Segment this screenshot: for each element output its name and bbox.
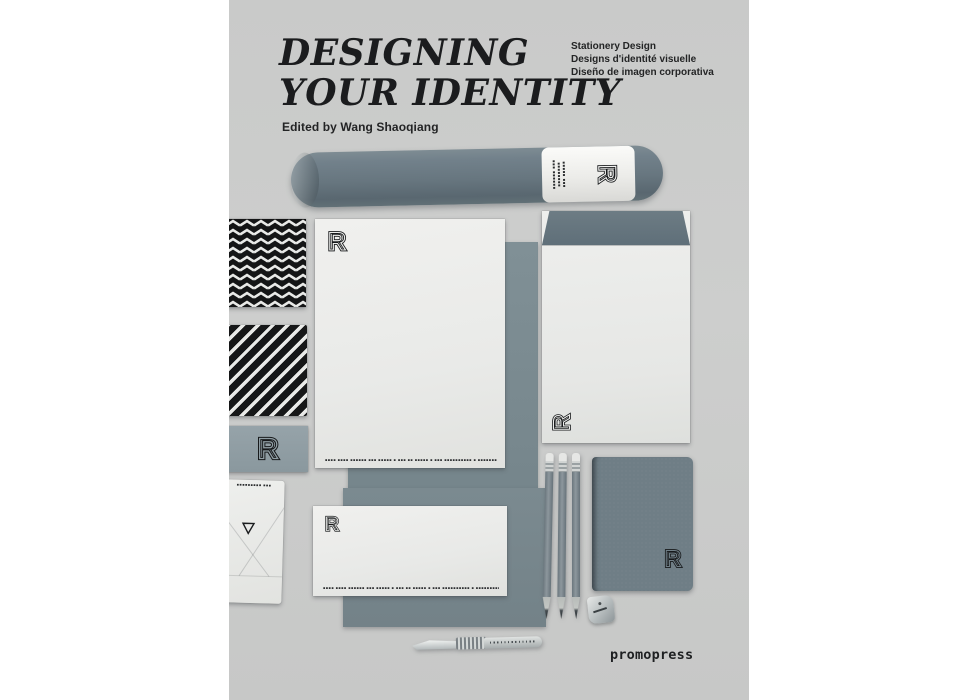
gray-business-card: RR [229,426,308,472]
title-line-2: YOUR IDENTITY [279,73,621,113]
tube-end-cap [290,152,319,208]
pencil-ferrule [572,461,580,472]
scene: DESIGNING YOUR IDENTITY Edited by Wang S… [0,0,980,700]
subtitle-spanish: Diseño de imagen corporativa [571,66,714,79]
page-title: DESIGNING YOUR IDENTITY [279,33,621,113]
pencil-body [572,472,580,597]
pencil [557,453,567,619]
r-logo-icon: RR [324,226,350,256]
book-cover: DESIGNING YOUR IDENTITY Edited by Wang S… [229,0,749,700]
diagonal-pattern-card [229,325,307,416]
envelope-flap [542,211,690,245]
notebook: RR [592,457,693,591]
title-line-1: DESIGNING [279,33,621,73]
scalpel-grip [456,637,486,650]
svg-text:R: R [548,414,574,430]
envelope-c5: RR [542,211,690,443]
letterhead-footer-microtext: ▪▪▪▪ ▪▪▪▪ ▪▪▪▪▪▪ ▪▪▪ ▪▪▪▪▪ ▪ ▪▪▪ ▪▪ ▪▪▪▪… [325,458,497,463]
pencil-ferrule [545,461,553,472]
tube-label: ▪▪▪▪▪▪ ▪▪▪ ▪▪▪▪▪▪▪▪ ▪▪▪ ▪▪▪▪▪ RR [541,146,635,203]
envelope-back-card: ▪▪▪▪▪▪▪▪▪ ▪▪▪ [229,479,285,604]
svg-text:R: R [258,434,279,466]
editor-credit: Edited by Wang Shaoqiang [282,120,439,134]
svg-text:R: R [325,515,339,536]
pencil-tip [542,597,550,619]
pencil [572,453,580,619]
pencil-ferrule [559,461,567,472]
dl-footer-microtext: ▪▪▪▪ ▪▪▪▪ ▪▪▪▪▪▪ ▪▪▪ ▪▪▪▪▪ ▪ ▪▪▪ ▪▪ ▪▪▪▪… [323,586,499,591]
scalpel [412,633,542,653]
edition-subtitles: Stationery Design Designs d'identité vis… [571,40,714,79]
pencil-body [543,472,554,597]
pencil-body [557,472,566,597]
pencil [542,453,553,619]
svg-text:R: R [665,545,681,571]
svg-text:R: R [593,165,620,184]
sharpener-slot [593,607,607,613]
chevron-pattern [229,219,306,307]
sharpener-screw [598,602,601,605]
r-logo-icon: RR [661,544,685,572]
pencil-tip [572,597,580,619]
tube-label-microtext: ▪▪▪▪▪▪ ▪▪▪ ▪▪▪▪▪▪▪▪ ▪▪▪ ▪▪▪▪▪ [551,152,568,196]
r-logo-icon: RR [322,512,342,535]
pencil-eraser [559,453,567,461]
pencil-tip [557,597,565,619]
dl-envelope: RR ▪▪▪▪ ▪▪▪▪ ▪▪▪▪▪▪ ▪▪▪ ▪▪▪▪▪ ▪ ▪▪▪ ▪▪ ▪… [313,506,507,596]
pencil-sharpener [587,595,616,625]
chevron-pattern-card [229,219,306,307]
r-logo-icon: RR [548,411,575,435]
scalpel-blade [412,640,458,650]
triangle-logo-icon [241,522,255,535]
poster-tube: ▪▪▪▪▪▪ ▪▪▪ ▪▪▪▪▪▪▪▪ ▪▪▪ ▪▪▪▪▪ RR [290,145,663,208]
r-logo-icon: RR [253,431,283,465]
svg-text:R: R [328,229,346,256]
letterhead-sheet: RR ▪▪▪▪ ▪▪▪▪ ▪▪▪▪▪▪ ▪▪▪ ▪▪▪▪▪ ▪ ▪▪▪ ▪▪ ▪… [315,219,505,468]
publisher-logo: promopress [610,647,693,663]
r-logo-icon: RR [593,160,623,187]
subtitle-french: Designs d'identité visuelle [571,53,714,66]
pencil-eraser [546,453,554,461]
pencil-eraser [572,453,580,461]
fold-lines [229,479,285,604]
subtitle-english: Stationery Design [571,40,714,53]
